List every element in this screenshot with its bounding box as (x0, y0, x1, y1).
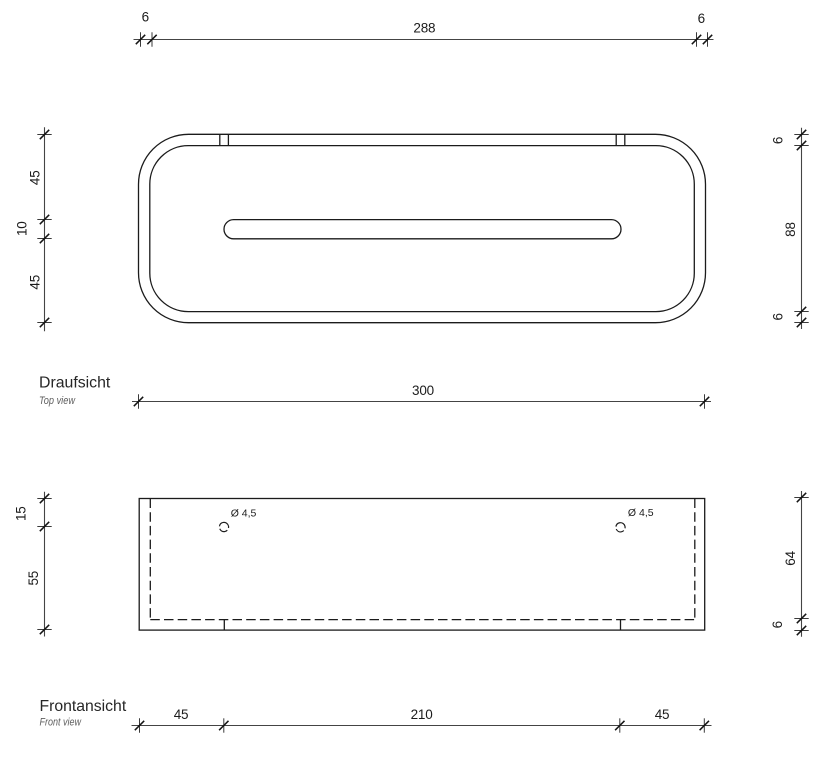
svg-text:45: 45 (28, 275, 43, 290)
svg-text:Draufsicht: Draufsicht (39, 375, 111, 392)
svg-text:Ø 4,5: Ø 4,5 (231, 507, 257, 519)
svg-text:88: 88 (783, 222, 798, 237)
svg-text:45: 45 (174, 707, 189, 722)
svg-text:6: 6 (770, 621, 785, 628)
svg-text:64: 64 (783, 550, 798, 565)
svg-text:6: 6 (771, 137, 786, 144)
svg-text:55: 55 (26, 571, 41, 586)
svg-text:6: 6 (698, 11, 705, 26)
svg-text:Front view: Front view (40, 717, 82, 729)
svg-text:45: 45 (28, 170, 43, 185)
svg-text:6: 6 (142, 10, 149, 25)
svg-text:300: 300 (412, 383, 434, 398)
svg-text:Frontansicht: Frontansicht (40, 698, 127, 715)
svg-text:288: 288 (413, 20, 435, 35)
svg-text:210: 210 (411, 707, 433, 722)
svg-text:6: 6 (771, 313, 786, 320)
svg-text:Top view: Top view (39, 395, 76, 407)
svg-text:45: 45 (655, 707, 670, 722)
svg-text:15: 15 (14, 506, 29, 521)
svg-text:Ø 4,5: Ø 4,5 (628, 507, 654, 519)
svg-text:10: 10 (15, 221, 30, 236)
